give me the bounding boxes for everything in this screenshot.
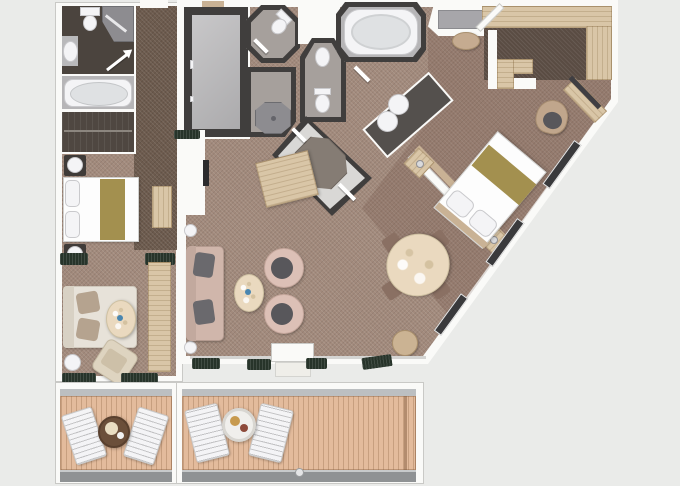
washbasin-double [377, 111, 398, 132]
left-bed-pillow [65, 211, 80, 238]
entry-ottoman [452, 32, 480, 50]
coffee-table-accent [117, 315, 123, 321]
toilet-bowl [83, 15, 97, 31]
floor-plan [0, 0, 680, 486]
window-planter [192, 358, 220, 369]
sofa-pillow [192, 299, 215, 326]
coffee-table-accent [245, 289, 251, 295]
window-planter [247, 359, 271, 370]
nightstand-lamp [67, 157, 83, 173]
sofa-pillow [75, 317, 100, 342]
washbasin-small [315, 47, 330, 67]
left-bed-pillow [65, 180, 80, 207]
utility-closet-floor [192, 15, 240, 129]
closet-handle [190, 96, 194, 102]
closet-threshold [202, 1, 224, 7]
sofa-pillow [192, 252, 215, 279]
nightstand-knob [416, 160, 424, 168]
window-planter [361, 354, 392, 370]
sideboard-long [148, 262, 171, 372]
living-wall-pilaster [183, 130, 205, 215]
swivel-chair [264, 294, 304, 334]
deck-table-food [230, 416, 240, 426]
left-veranda-gutter [60, 389, 172, 396]
deck-table-cup [117, 432, 124, 439]
left-suite-entry-door [140, 0, 168, 8]
swivel-chair-seat [271, 303, 293, 325]
toilet-bowl-2 [315, 94, 330, 113]
left-veranda-railing [60, 470, 172, 482]
washbasin [63, 41, 78, 62]
side-table-round [392, 330, 418, 356]
bath-block-wall [298, 2, 340, 44]
window-planter [306, 358, 327, 369]
dresser [152, 186, 172, 228]
tv-panel [203, 160, 209, 186]
railing-post [295, 468, 304, 477]
toilet-tank-2 [314, 88, 331, 95]
sofa-pillow [75, 290, 100, 315]
deck-divider [404, 396, 407, 470]
main-veranda-gutter [182, 389, 416, 396]
left-wardrobe-shelf [64, 130, 132, 132]
left-bed-runner [100, 179, 125, 240]
swivel-chair-seat [271, 257, 293, 279]
wall-sconce [184, 224, 197, 237]
left-sofa-back [63, 286, 74, 348]
wall-sconce [184, 341, 197, 354]
deck-table [222, 408, 256, 442]
deck-table-plate [105, 422, 118, 435]
left-wardrobe [62, 112, 134, 152]
shower-drain [271, 116, 276, 121]
large-bathtub-inner [351, 14, 411, 50]
side-lamp [64, 354, 81, 371]
deck-table-food [240, 424, 248, 432]
closet-handle [190, 60, 194, 69]
wardrobe-right [586, 26, 612, 80]
bathtub-inner [70, 82, 128, 106]
swivel-chair [264, 248, 304, 288]
dressing-counter [497, 59, 514, 89]
planter [60, 253, 88, 265]
planter [174, 130, 200, 139]
